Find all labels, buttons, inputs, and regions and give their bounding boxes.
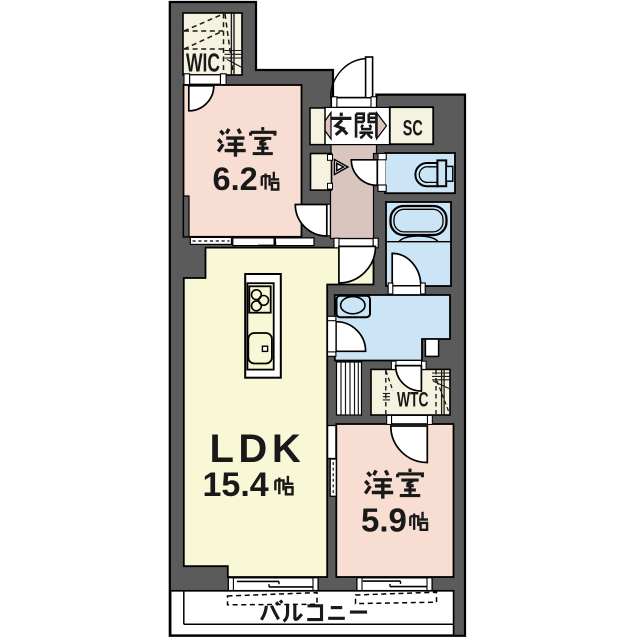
svg-text:15.4: 15.4 bbox=[203, 466, 269, 504]
svg-text:SC: SC bbox=[403, 116, 423, 141]
svg-text:LDK: LDK bbox=[210, 427, 306, 471]
svg-text:6.2: 6.2 bbox=[213, 161, 258, 197]
svg-text:5.9: 5.9 bbox=[361, 502, 407, 539]
svg-text:WIC: WIC bbox=[186, 47, 220, 77]
svg-text:WTC: WTC bbox=[397, 389, 429, 412]
